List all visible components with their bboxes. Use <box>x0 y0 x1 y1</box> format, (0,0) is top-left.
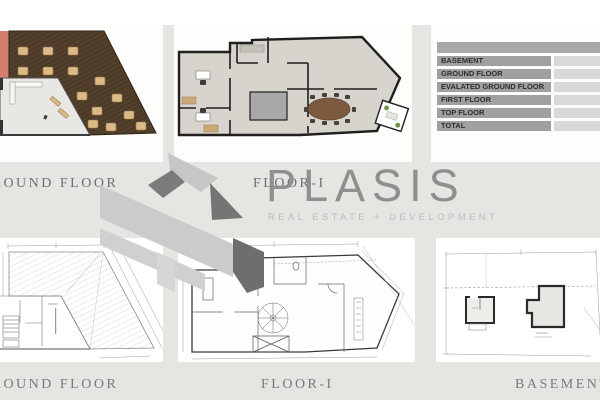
logo-beam-cap-dark <box>233 238 264 293</box>
counter <box>240 45 264 52</box>
brand-name: PLASIS <box>266 163 466 208</box>
wall-segment <box>0 120 3 135</box>
bottom-basement-label: BASEMENT <box>515 377 600 393</box>
area-table-panel: BASEMENT GROUND FLOOR EVALATED GROUND FL… <box>431 25 600 162</box>
row-label: FIRST FLOOR <box>437 95 551 105</box>
floor1-outline <box>179 37 400 135</box>
spiral-stair <box>258 303 288 333</box>
row-value <box>554 69 600 79</box>
row-label: EVALATED GROUND FLOOR <box>437 82 551 92</box>
row-value <box>554 108 600 118</box>
row-value <box>554 82 600 92</box>
basement-blueprint-panel <box>436 238 600 362</box>
brochure-page: BASEMENT GROUND FLOOR EVALATED GROUND FL… <box>0 0 600 400</box>
row-value <box>554 95 600 105</box>
row-label: GROUND FLOOR <box>437 69 551 79</box>
basement-room-right <box>527 286 564 337</box>
basement-blueprint <box>436 238 600 362</box>
bottom-floor1-label: FLOOR-I <box>261 377 334 393</box>
row-value <box>554 56 600 66</box>
row-label: TOP FLOOR <box>437 108 551 118</box>
row-value <box>554 121 600 131</box>
logo-vertical-band <box>157 252 175 292</box>
row-label: TOTAL <box>437 121 551 131</box>
bottom-ground-floor-label: GROUND FLOOR <box>0 377 118 393</box>
ground-floor-render-panel <box>0 25 163 162</box>
logo-triangle-dark <box>210 183 243 220</box>
brand-tagline: REAL ESTATE + DEVELOPMENT <box>268 212 498 223</box>
floor1-render-panel <box>174 25 412 162</box>
stair-shaft <box>250 92 287 120</box>
conference-table <box>304 93 356 125</box>
top-white-band <box>0 0 600 25</box>
basement-room-left <box>466 295 494 330</box>
row-label: BASEMENT <box>437 56 551 66</box>
wall-segment <box>0 78 3 90</box>
dashed-line <box>446 286 596 288</box>
plasis-logo-mark <box>88 145 268 295</box>
ground-floor-render <box>0 25 163 162</box>
area-table-header <box>437 42 600 53</box>
floor1-render <box>174 25 412 162</box>
